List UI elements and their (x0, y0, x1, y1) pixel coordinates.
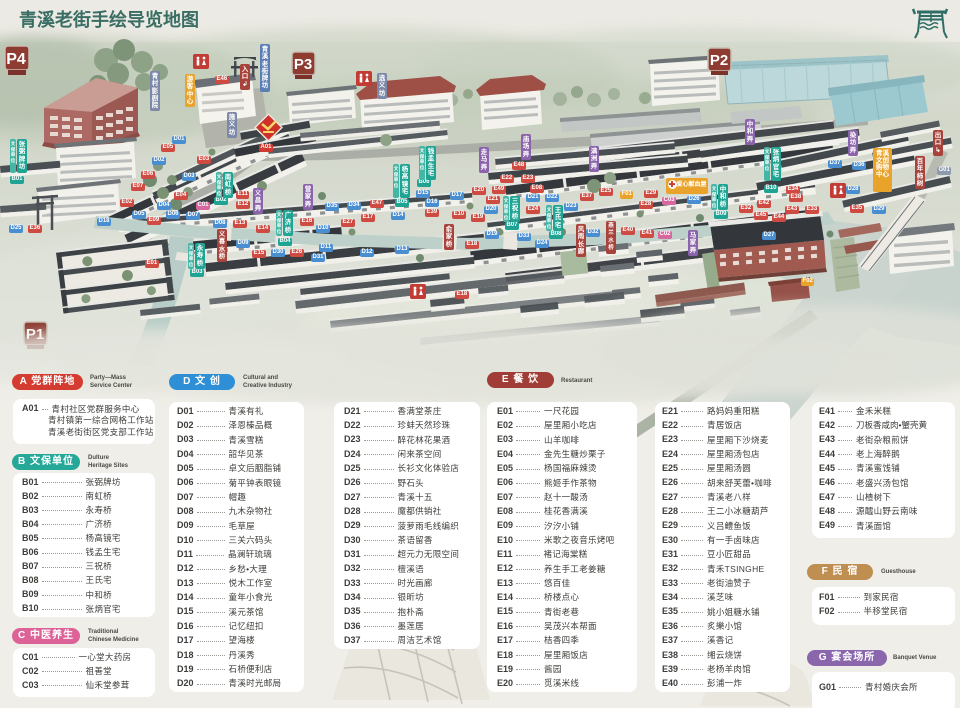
svg-text:P2: P2 (710, 52, 728, 69)
svg-text:P4: P4 (6, 51, 26, 68)
svg-text:P3: P3 (294, 56, 312, 73)
